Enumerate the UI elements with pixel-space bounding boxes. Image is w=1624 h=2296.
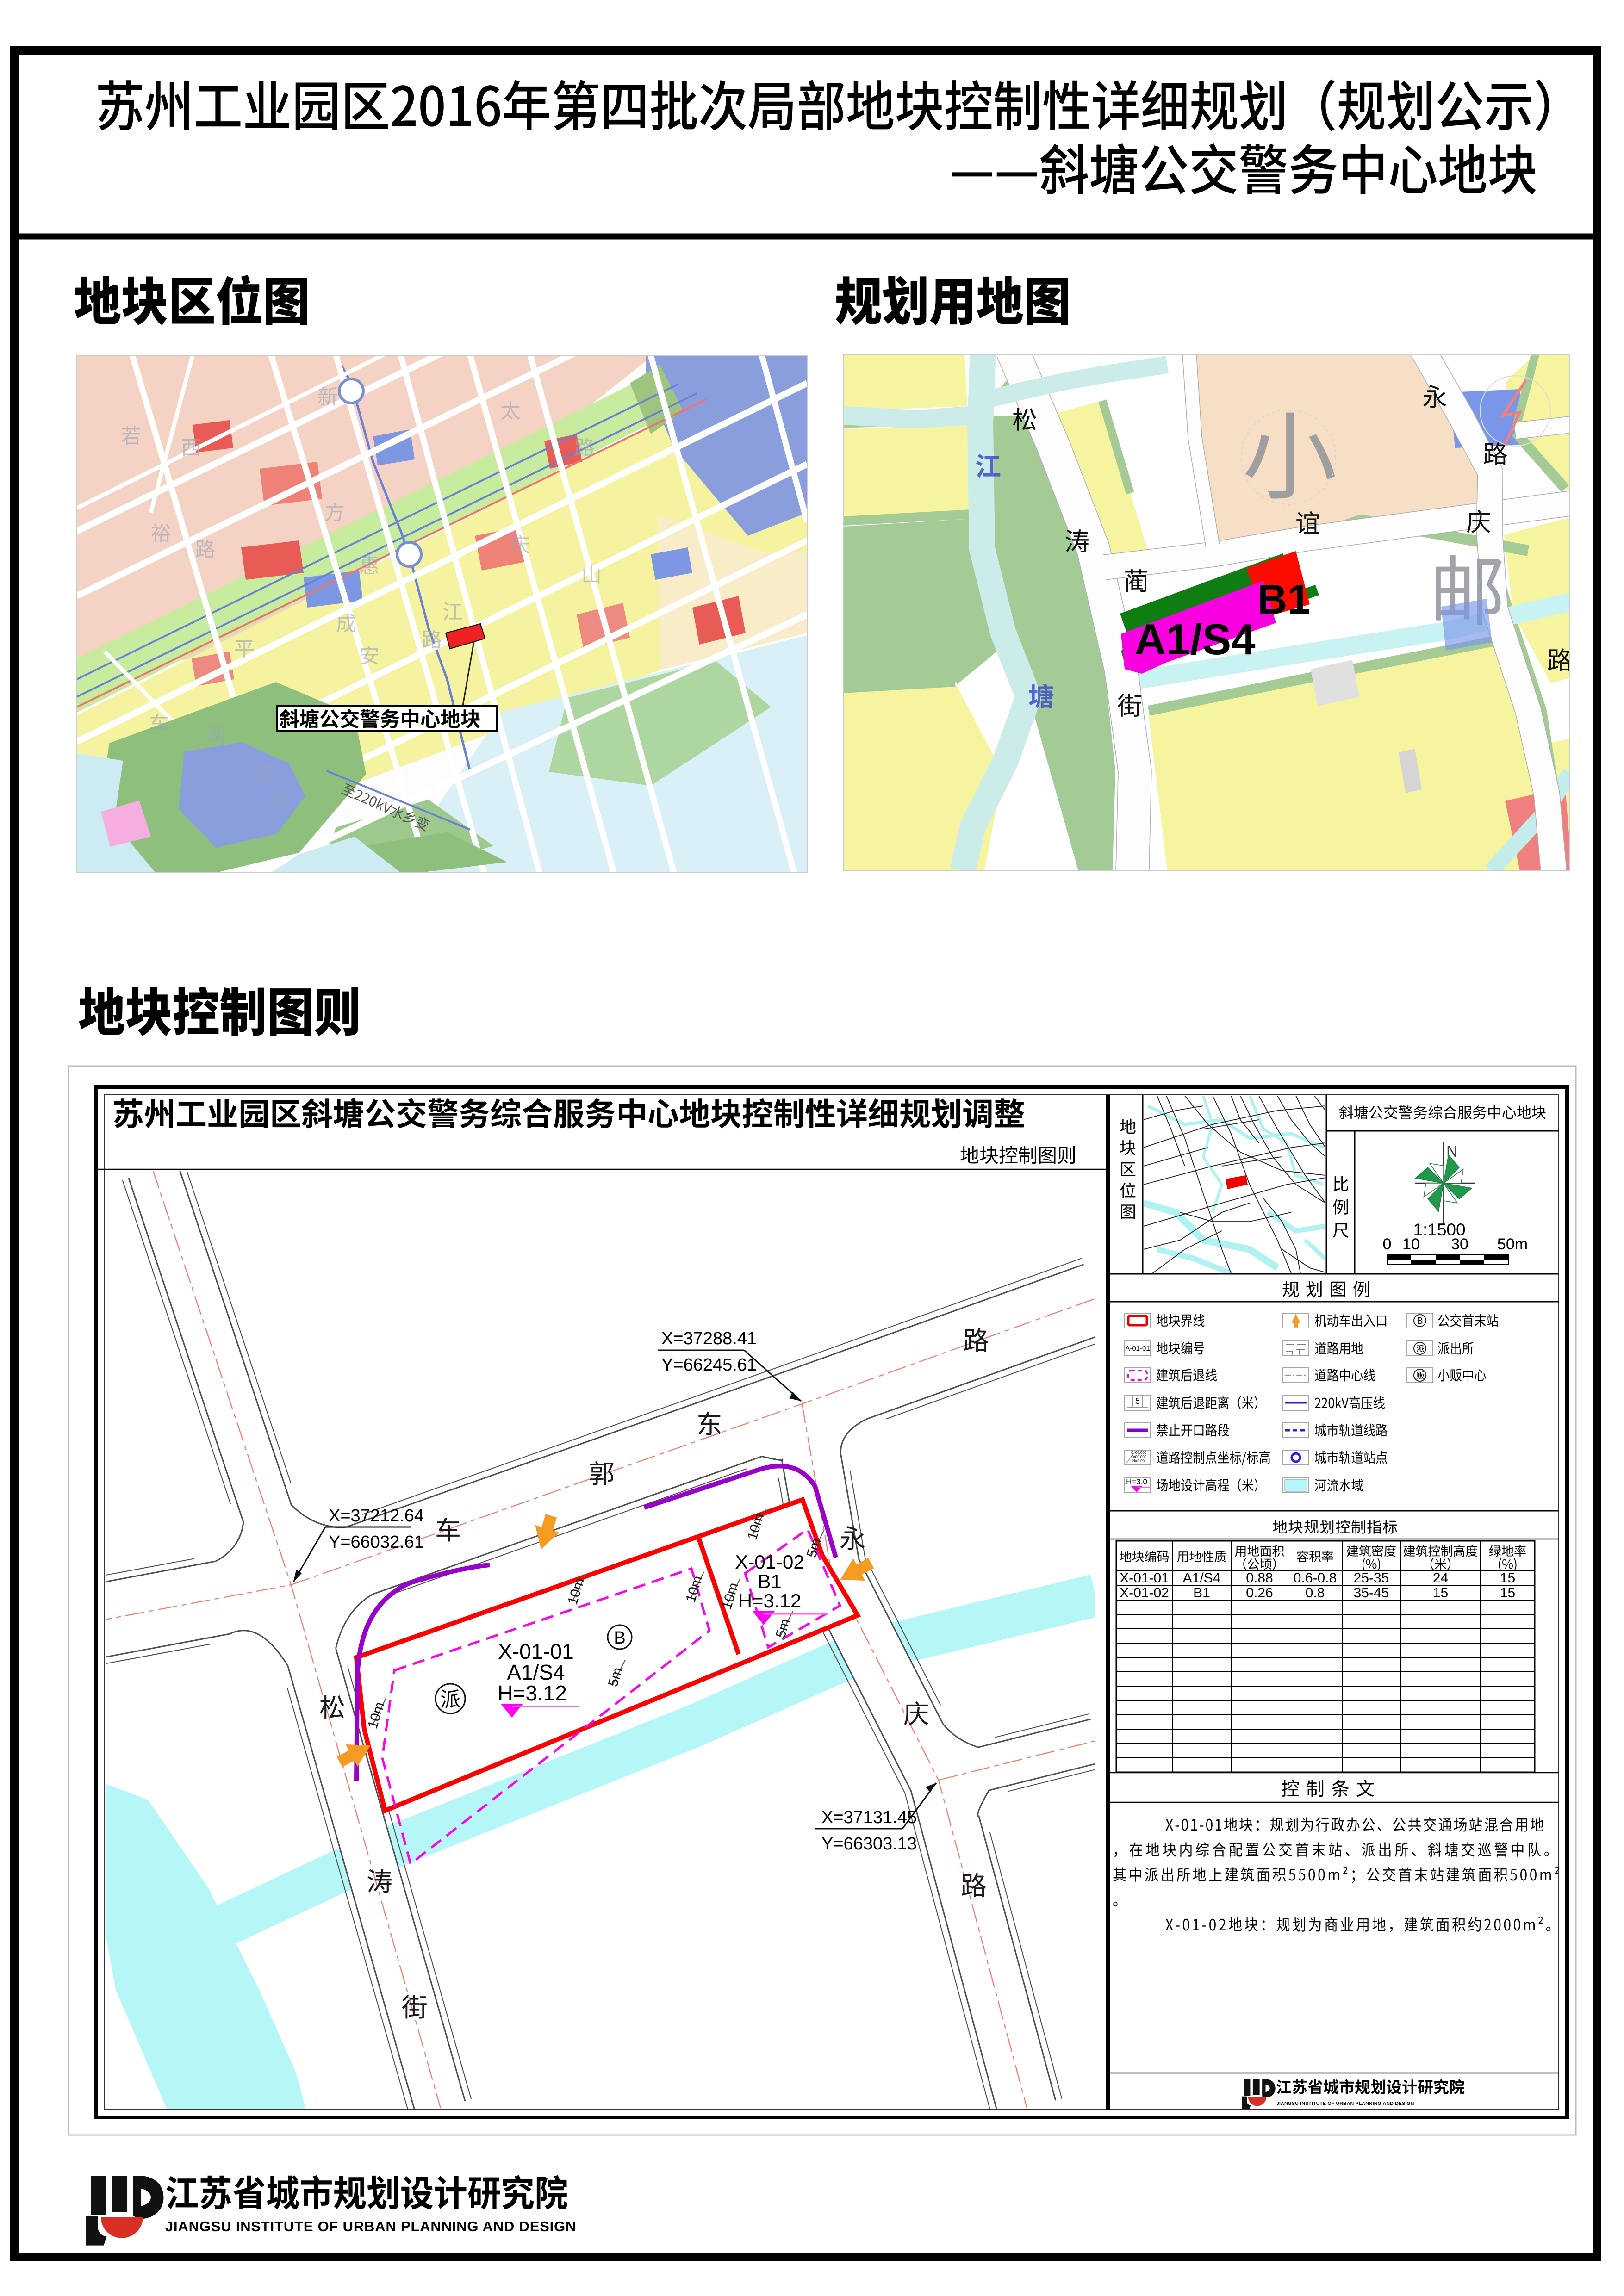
svg-text:JIANGSU INSTITUTE OF URBAN PLA: JIANGSU INSTITUTE OF URBAN PLANNING AND … — [165, 2218, 576, 2234]
svg-text:H=3.12: H=3.12 — [738, 1590, 802, 1612]
svg-text:Y=66245.61: Y=66245.61 — [661, 1355, 757, 1375]
svg-text:X-01-02: X-01-02 — [1120, 1585, 1169, 1601]
svg-text:H=3.0: H=3.0 — [1126, 1477, 1147, 1486]
svg-text:0.26: 0.26 — [1246, 1585, 1273, 1601]
svg-text:Y=00.000: Y=00.000 — [1131, 1455, 1147, 1459]
svg-text:24: 24 — [1433, 1570, 1448, 1586]
svg-text:15: 15 — [1433, 1585, 1448, 1601]
svg-text:B: B — [614, 1628, 625, 1648]
svg-text:X=37288.41: X=37288.41 — [661, 1329, 757, 1348]
svg-text:H=3.12: H=3.12 — [498, 1681, 567, 1705]
svg-text:0: 0 — [1383, 1235, 1392, 1253]
svg-text:Y=66032.61: Y=66032.61 — [329, 1533, 424, 1552]
svg-text:25-35: 25-35 — [1354, 1570, 1389, 1586]
svg-text:35-45: 35-45 — [1354, 1585, 1389, 1601]
svg-text:A1/S4: A1/S4 — [1183, 1570, 1221, 1586]
svg-text:10: 10 — [1402, 1235, 1420, 1253]
svg-text:JIANGSU INSTITUTE OF URBAN PLA: JIANGSU INSTITUTE OF URBAN PLANNING AND … — [1276, 2101, 1414, 2106]
svg-text:X-01-02: X-01-02 — [735, 1551, 804, 1573]
svg-text:Y=66303.13: Y=66303.13 — [821, 1834, 917, 1854]
svg-text:0.8: 0.8 — [1306, 1585, 1325, 1601]
svg-text:X=00.000: X=00.000 — [1131, 1451, 1147, 1455]
svg-text:B1: B1 — [1257, 577, 1310, 623]
svg-text:30: 30 — [1451, 1235, 1468, 1253]
svg-text:0.88: 0.88 — [1246, 1570, 1273, 1586]
svg-text:50m: 50m — [1497, 1235, 1528, 1253]
svg-text:B1: B1 — [1193, 1585, 1210, 1601]
svg-text:15: 15 — [1500, 1570, 1515, 1586]
svg-text:0.6-0.8: 0.6-0.8 — [1294, 1570, 1337, 1586]
svg-text:H=0.00: H=0.00 — [1132, 1459, 1145, 1463]
svg-text:A-01-01: A-01-01 — [1125, 1345, 1150, 1353]
svg-text:X-01-01: X-01-01 — [1120, 1570, 1169, 1586]
svg-text:X=37131.45: X=37131.45 — [821, 1808, 917, 1827]
svg-text:5: 5 — [1135, 1396, 1140, 1406]
svg-text:B: B — [1417, 1316, 1423, 1326]
svg-text:A1/S4: A1/S4 — [1134, 615, 1255, 664]
svg-text:15: 15 — [1500, 1585, 1515, 1601]
svg-text:X=37212.64: X=37212.64 — [329, 1506, 424, 1526]
svg-text:B1: B1 — [758, 1570, 781, 1592]
